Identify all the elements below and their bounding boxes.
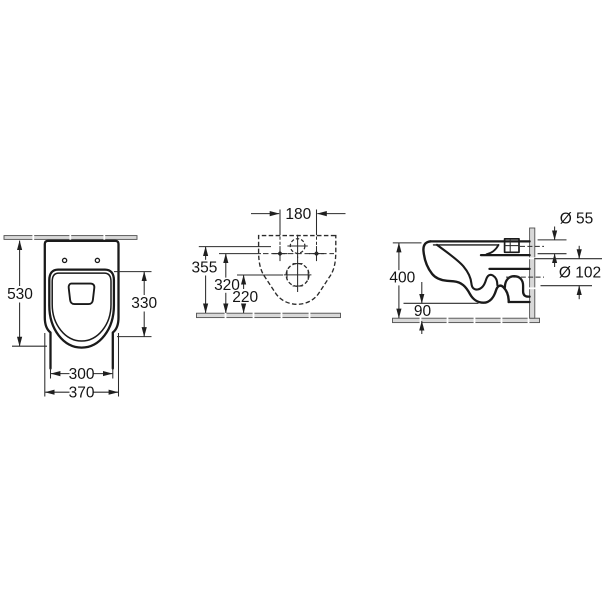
dim-label-dia-55: Ø 55 <box>560 211 594 228</box>
bowl-outer-profile <box>423 241 508 302</box>
wc-dimension-drawing: 530 330 300 370 <box>0 0 603 603</box>
dim-bowl-span-330: 330 <box>114 272 158 337</box>
dim-label-400: 400 <box>389 270 415 287</box>
bowl-inner-profile <box>437 245 497 290</box>
floor-hatch-joint <box>225 312 227 318</box>
dim-label-180: 180 <box>285 206 311 223</box>
floor-hatch-joint <box>501 317 503 323</box>
floor-hatch-band <box>197 313 341 317</box>
dim-overall-width-370: 370 <box>45 384 118 401</box>
seat-hinge-hole <box>63 258 67 262</box>
side-section-view: 400 90 Ø 55 Ø 102 <box>389 211 602 335</box>
technical-drawing-canvas: 530 330 300 370 <box>0 0 603 603</box>
wall-hatch-joint <box>69 235 71 240</box>
rear-installation-view: 180 355 320 220 <box>191 206 345 319</box>
dim-overall-height-530: 530 <box>7 241 47 347</box>
dim-label-dia-102: Ø 102 <box>559 265 601 282</box>
dim-label-220: 220 <box>232 289 258 306</box>
dim-label-370: 370 <box>69 384 95 401</box>
seat-outer-ring <box>49 270 114 348</box>
floor-hatch-joint <box>474 317 476 323</box>
dim-lower-width-300: 300 <box>51 366 113 383</box>
dim-label-530: 530 <box>7 286 33 303</box>
seat-hinge-hole <box>95 258 99 262</box>
floor-hatch-joint <box>309 312 311 318</box>
dim-label-300: 300 <box>69 366 95 383</box>
water-inlet-mark <box>287 235 307 258</box>
dim-label-90: 90 <box>414 303 432 320</box>
floor-hatch-joint <box>447 317 449 323</box>
front-view: 530 330 300 370 <box>4 235 158 402</box>
floor-hatch-joint <box>528 317 530 323</box>
seat-back-curve <box>487 245 499 254</box>
wall-hatch-joint <box>529 287 536 289</box>
bowl-water-outline <box>69 284 95 305</box>
wall-hatch-joint <box>32 235 34 240</box>
wall-hatch-joint <box>103 235 105 240</box>
floor-hatch-joint <box>253 312 255 318</box>
dim-label-355: 355 <box>191 260 217 277</box>
dim-label-330: 330 <box>131 295 157 312</box>
outlet-mark <box>284 257 312 293</box>
dim-hole-spacing-180: 180 <box>251 206 346 261</box>
floor-hatch-joint <box>281 312 283 318</box>
